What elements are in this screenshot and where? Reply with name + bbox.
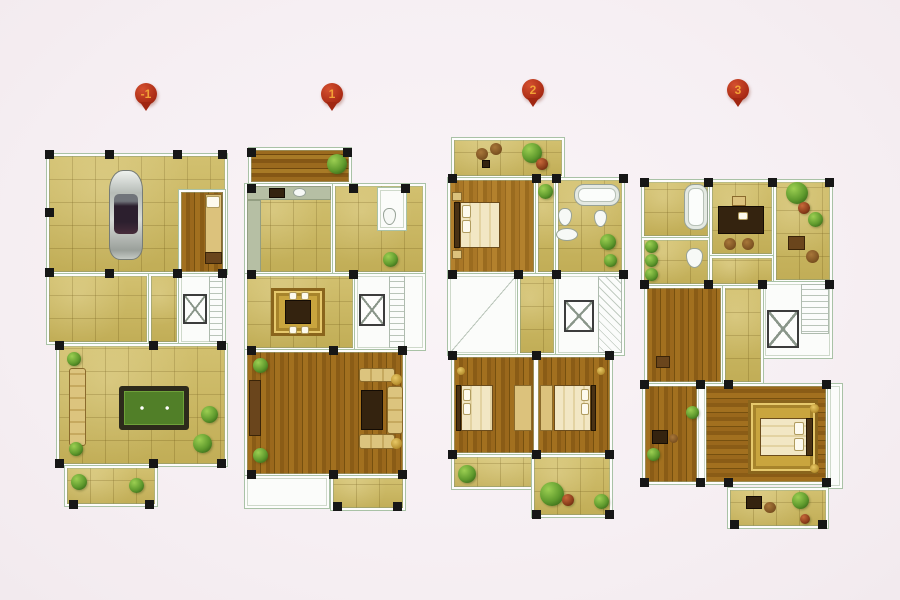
plant-icon (792, 492, 809, 509)
plant-icon (458, 465, 476, 483)
sofa-icon (359, 368, 395, 382)
ceiling-lamp-icon (597, 367, 605, 375)
basket-icon (806, 250, 819, 263)
column (532, 450, 541, 459)
side-terrace (245, 476, 329, 508)
column (45, 208, 54, 217)
column (640, 380, 649, 389)
plant-icon (645, 240, 658, 253)
stool-icon (656, 356, 670, 368)
red-plant-icon (562, 494, 574, 506)
desk-paper (738, 212, 748, 220)
column (217, 459, 226, 468)
plant-icon (327, 154, 347, 174)
side-table-icon (391, 374, 402, 385)
plant-icon (69, 442, 83, 456)
plant-icon (253, 448, 268, 463)
ceiling-lamp-icon (457, 367, 465, 375)
plant-icon (253, 358, 268, 373)
corridor (723, 286, 763, 384)
wardrobe-icon (540, 385, 553, 431)
column (619, 270, 628, 279)
plant-icon (201, 406, 218, 423)
floorplan-basement (45, 148, 235, 510)
column (173, 269, 182, 278)
column (45, 268, 54, 277)
column (329, 470, 338, 479)
column (724, 478, 733, 487)
column (398, 346, 407, 355)
column (329, 346, 338, 355)
plant-icon (600, 234, 616, 250)
bed-pillow (581, 403, 589, 415)
partition-wall (699, 384, 704, 484)
corridor (518, 274, 556, 355)
bed-shelf (205, 252, 222, 264)
column (532, 510, 541, 519)
column (218, 269, 227, 278)
plant-icon (193, 434, 212, 453)
column (605, 510, 614, 519)
kitchen-counter (247, 186, 331, 200)
floor-marker-third: 3 (727, 79, 749, 101)
bed-pillow (581, 389, 589, 401)
column (349, 270, 358, 279)
stairs-icon (598, 276, 622, 353)
column (532, 351, 541, 360)
plant-icon (786, 182, 808, 204)
red-plant-icon (536, 158, 548, 170)
column (55, 459, 64, 468)
basement-room (47, 274, 149, 344)
balcony-table-icon (746, 496, 762, 509)
column (552, 270, 561, 279)
column (333, 502, 342, 511)
elevator-icon (564, 300, 594, 332)
dining-chair (301, 326, 309, 334)
plant-icon (540, 482, 564, 506)
column (173, 150, 182, 159)
dining-chair (301, 292, 309, 300)
terrace-chair-icon (476, 148, 488, 160)
column (532, 174, 541, 183)
column (149, 341, 158, 350)
column (247, 148, 256, 157)
column (730, 520, 739, 529)
floor-marker-label: 3 (727, 79, 749, 101)
column (247, 270, 256, 279)
terrace-chair-icon (490, 143, 502, 155)
column (217, 341, 226, 350)
floor-marker-label: -1 (135, 83, 157, 105)
side-ledge (828, 384, 842, 488)
plant-icon (383, 252, 398, 267)
column (822, 478, 831, 487)
sofa-icon (387, 386, 403, 434)
floor-marker-first: 1 (321, 83, 343, 105)
column (825, 280, 834, 289)
chair-icon (742, 238, 754, 250)
chair-icon (724, 238, 736, 250)
kitchen-counter (247, 200, 261, 272)
column (247, 184, 256, 193)
nightstand-icon (452, 250, 462, 259)
car-cabin (114, 194, 137, 234)
plant-icon (645, 254, 658, 267)
column (704, 178, 713, 187)
column (724, 380, 733, 389)
bed-pillow (462, 205, 471, 218)
floor-marker-label: 1 (321, 83, 343, 105)
column (218, 150, 227, 159)
plant-icon (538, 184, 553, 199)
column (69, 500, 78, 509)
red-plant-icon (800, 514, 810, 524)
column (514, 270, 523, 279)
bathtub-icon (684, 184, 708, 230)
terrace-table-icon (482, 160, 490, 168)
column (552, 174, 561, 183)
floorplan-first (243, 148, 427, 520)
column (247, 470, 256, 479)
dining-chair (289, 292, 297, 300)
basement-corridor (149, 274, 179, 344)
dining-table-icon (285, 300, 311, 324)
column (640, 280, 649, 289)
plant-icon (686, 406, 699, 419)
column (619, 174, 628, 183)
basket-icon (764, 502, 776, 513)
partition-wall (534, 355, 538, 455)
billiard-table-icon (119, 386, 189, 430)
column (145, 500, 154, 509)
column (696, 478, 705, 487)
column (349, 184, 358, 193)
plant-icon (594, 494, 609, 509)
column (768, 178, 777, 187)
column (758, 280, 767, 289)
car-icon (109, 170, 143, 260)
column (398, 470, 407, 479)
plant-icon (647, 448, 660, 461)
column (822, 380, 831, 389)
bed-headboard (806, 418, 813, 456)
bed-pillow (463, 389, 471, 401)
sink-icon (556, 228, 578, 241)
desk-icon (718, 206, 764, 234)
floor-marker-label: 2 (522, 79, 544, 101)
plant-icon (67, 352, 81, 366)
column (105, 269, 114, 278)
column (825, 178, 834, 187)
column (640, 178, 649, 187)
column (448, 174, 457, 183)
column (605, 351, 614, 360)
column (704, 280, 713, 289)
terrace (452, 138, 564, 178)
floor-marker-second: 2 (522, 79, 544, 101)
chair-icon (669, 434, 678, 443)
bed-pillow (463, 403, 471, 415)
stairs-icon (801, 284, 829, 334)
column (818, 520, 827, 529)
bed-pillow (206, 196, 220, 208)
column (105, 150, 114, 159)
terrace-chair-icon (788, 236, 805, 250)
wardrobe-icon (514, 385, 532, 431)
bed-headboard (591, 385, 596, 431)
kitchen-sink-icon (293, 188, 306, 197)
family-room (645, 286, 723, 384)
red-plant-icon (798, 202, 810, 214)
column (448, 351, 457, 360)
column (448, 270, 457, 279)
open-void (448, 274, 518, 355)
column (401, 184, 410, 193)
dining-chair (289, 326, 297, 334)
column (247, 346, 256, 355)
bed-pillow (462, 220, 471, 233)
plant-icon (71, 474, 87, 490)
column (696, 380, 705, 389)
elevator-icon (767, 310, 799, 348)
plant-icon (129, 478, 144, 493)
column (149, 459, 158, 468)
column (45, 150, 54, 159)
bathtub-icon (574, 184, 620, 206)
elevator-icon (183, 294, 207, 324)
sofa-icon (359, 434, 395, 449)
coffee-table-icon (361, 390, 383, 430)
vanity-desk-icon (652, 430, 668, 444)
column (55, 341, 64, 350)
bed-pillow (794, 422, 804, 435)
nightstand-icon (810, 404, 819, 413)
stairs-icon (389, 276, 405, 348)
column (640, 478, 649, 487)
nightstand-icon (452, 192, 462, 201)
floorplan-second (448, 130, 628, 520)
stairs-icon (209, 276, 223, 342)
desk-chair-icon (732, 196, 746, 206)
nightstand-icon (810, 464, 819, 473)
floor-plan-sheet: -1 1 2 3 (0, 0, 900, 600)
column (343, 148, 352, 157)
balcony (728, 488, 828, 528)
plant-icon (808, 212, 823, 227)
floor-marker-basement: -1 (135, 83, 157, 105)
column (393, 502, 402, 511)
side-table-icon (391, 438, 402, 449)
sofa-icon (69, 368, 86, 446)
bed-pillow (794, 438, 804, 451)
floorplan-third (640, 178, 846, 550)
tv-cabinet-icon (249, 380, 261, 436)
elevator-icon (359, 294, 385, 326)
column (448, 450, 457, 459)
column (605, 450, 614, 459)
stove-icon (269, 188, 285, 198)
plant-icon (604, 254, 617, 267)
